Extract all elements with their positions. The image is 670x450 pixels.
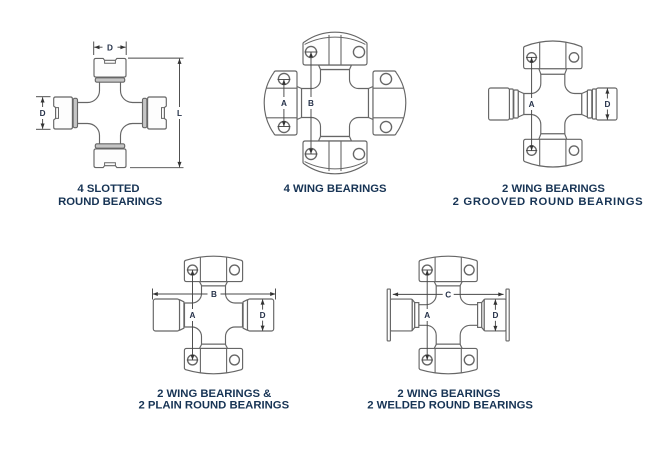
svg-text:2 WING BEARINGS: 2 WING BEARINGS <box>502 183 605 195</box>
svg-text:A: A <box>281 99 287 108</box>
svg-text:B: B <box>211 290 217 299</box>
svg-text:2 WELDED ROUND BEARINGS: 2 WELDED ROUND BEARINGS <box>367 400 533 412</box>
svg-text:ROUND BEARINGS: ROUND BEARINGS <box>58 196 163 208</box>
svg-text:B: B <box>308 99 314 108</box>
svg-text:2 WING BEARINGS &: 2 WING BEARINGS & <box>157 388 271 400</box>
svg-text:A: A <box>190 311 196 320</box>
svg-text:A: A <box>529 100 535 109</box>
svg-text:4 SLOTTED: 4 SLOTTED <box>77 183 139 195</box>
svg-text:D: D <box>492 311 498 320</box>
svg-text:D: D <box>260 311 266 320</box>
svg-text:2 GROOVED ROUND BEARINGS: 2 GROOVED ROUND BEARINGS <box>453 196 644 208</box>
svg-text:D: D <box>604 100 610 109</box>
svg-text:D: D <box>107 43 113 52</box>
svg-text:L: L <box>177 109 182 118</box>
svg-text:2 PLAIN ROUND BEARINGS: 2 PLAIN ROUND BEARINGS <box>138 400 289 412</box>
svg-text:D: D <box>40 109 46 118</box>
svg-text:A: A <box>424 311 430 320</box>
svg-text:C: C <box>445 290 451 299</box>
svg-text:2 WING BEARINGS: 2 WING BEARINGS <box>397 388 500 400</box>
svg-text:4 WING BEARINGS: 4 WING BEARINGS <box>284 183 387 195</box>
